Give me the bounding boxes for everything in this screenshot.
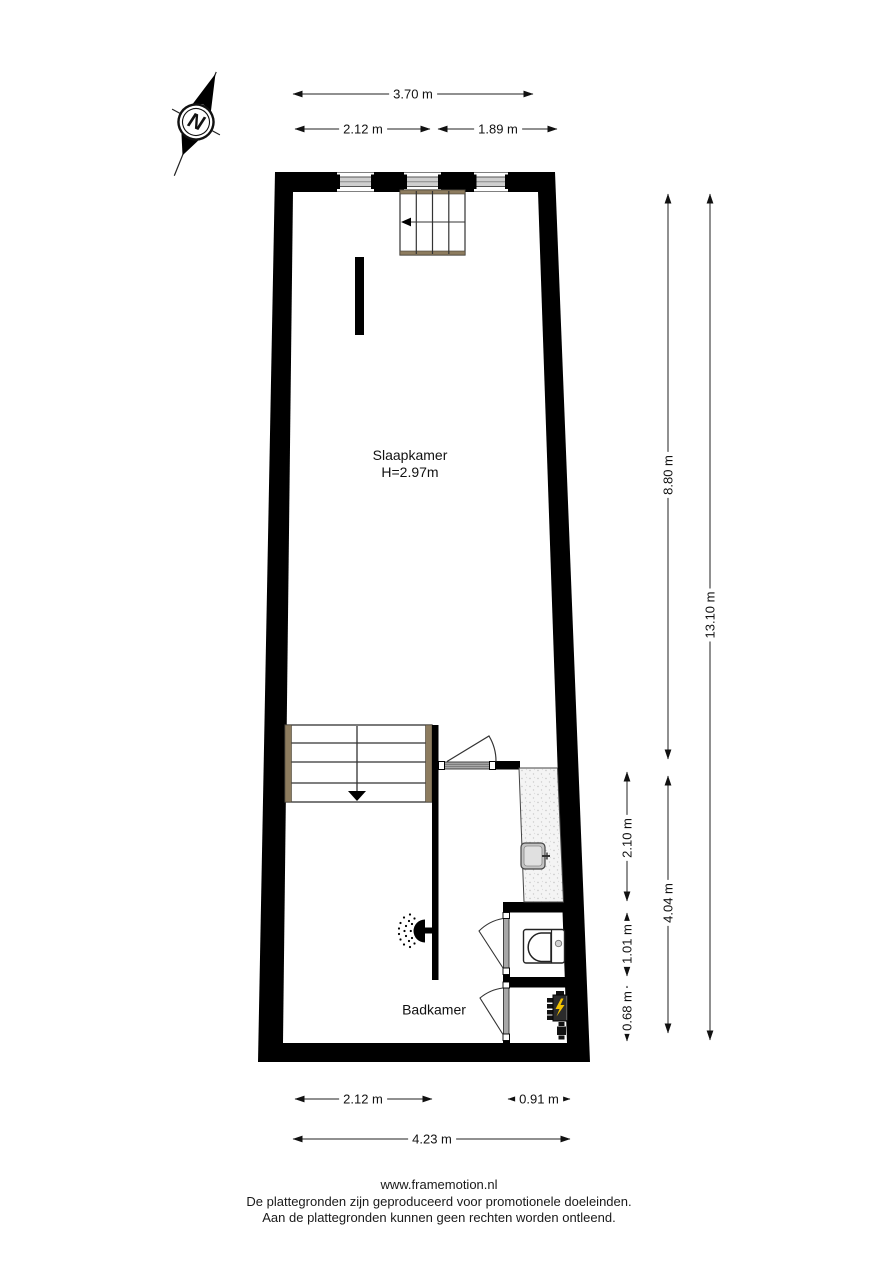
footer-disclaimer-2: Aan de plattegronden kunnen geen rechten… [0,1210,878,1227]
slaapkamer-name: Slaapkamer [373,447,448,464]
floor-plan-drawing: N [0,0,878,1266]
dim-label-right-total: 13.10 m [703,589,718,642]
dim-label-bottom-right: 0.91 m [515,1092,563,1107]
footer: www.framemotion.nl De plattegronden zijn… [0,1177,878,1227]
dim-label-right-shower: 2.10 m [620,815,635,861]
dim-label-right-toilet: 1.01 m [620,921,635,967]
room-label-slaapkamer: Slaapkamer H=2.97m [373,447,448,481]
footer-disclaimer-1: De plattegronden zijn geproduceerd voor … [0,1194,878,1211]
dim-label-right-upper: 8.80 m [661,452,676,498]
dim-label-bottom-left: 2.12 m [339,1092,387,1107]
dim-label-top-right: 1.89 m [474,122,522,137]
dim-label-right-closet: 0.68 m [620,988,635,1034]
chimney-stub [355,257,364,335]
room-label-badkamer: Badkamer [402,1002,466,1019]
compass-icon: N [149,62,241,186]
window-top-right [473,173,510,192]
dim-label-right-lower: 4.04 m [661,880,676,926]
shower-area [519,768,564,902]
dim-label-top-total: 3.70 m [389,87,437,102]
stairs-top [400,190,465,255]
floorplan-canvas: N 3.70 m 2.12 m 1.89 m 8.80 m 13.10 m 2.… [0,0,878,1266]
dim-label-top-left: 2.12 m [339,122,387,137]
window-top-left [336,173,375,192]
footer-website: www.framemotion.nl [0,1177,878,1194]
slaapkamer-ceiling-height: H=2.97m [373,464,448,481]
window-top-center [403,173,442,192]
dim-label-bottom-total: 4.23 m [408,1132,456,1147]
stairs-main [285,725,432,802]
toilet [524,930,565,964]
